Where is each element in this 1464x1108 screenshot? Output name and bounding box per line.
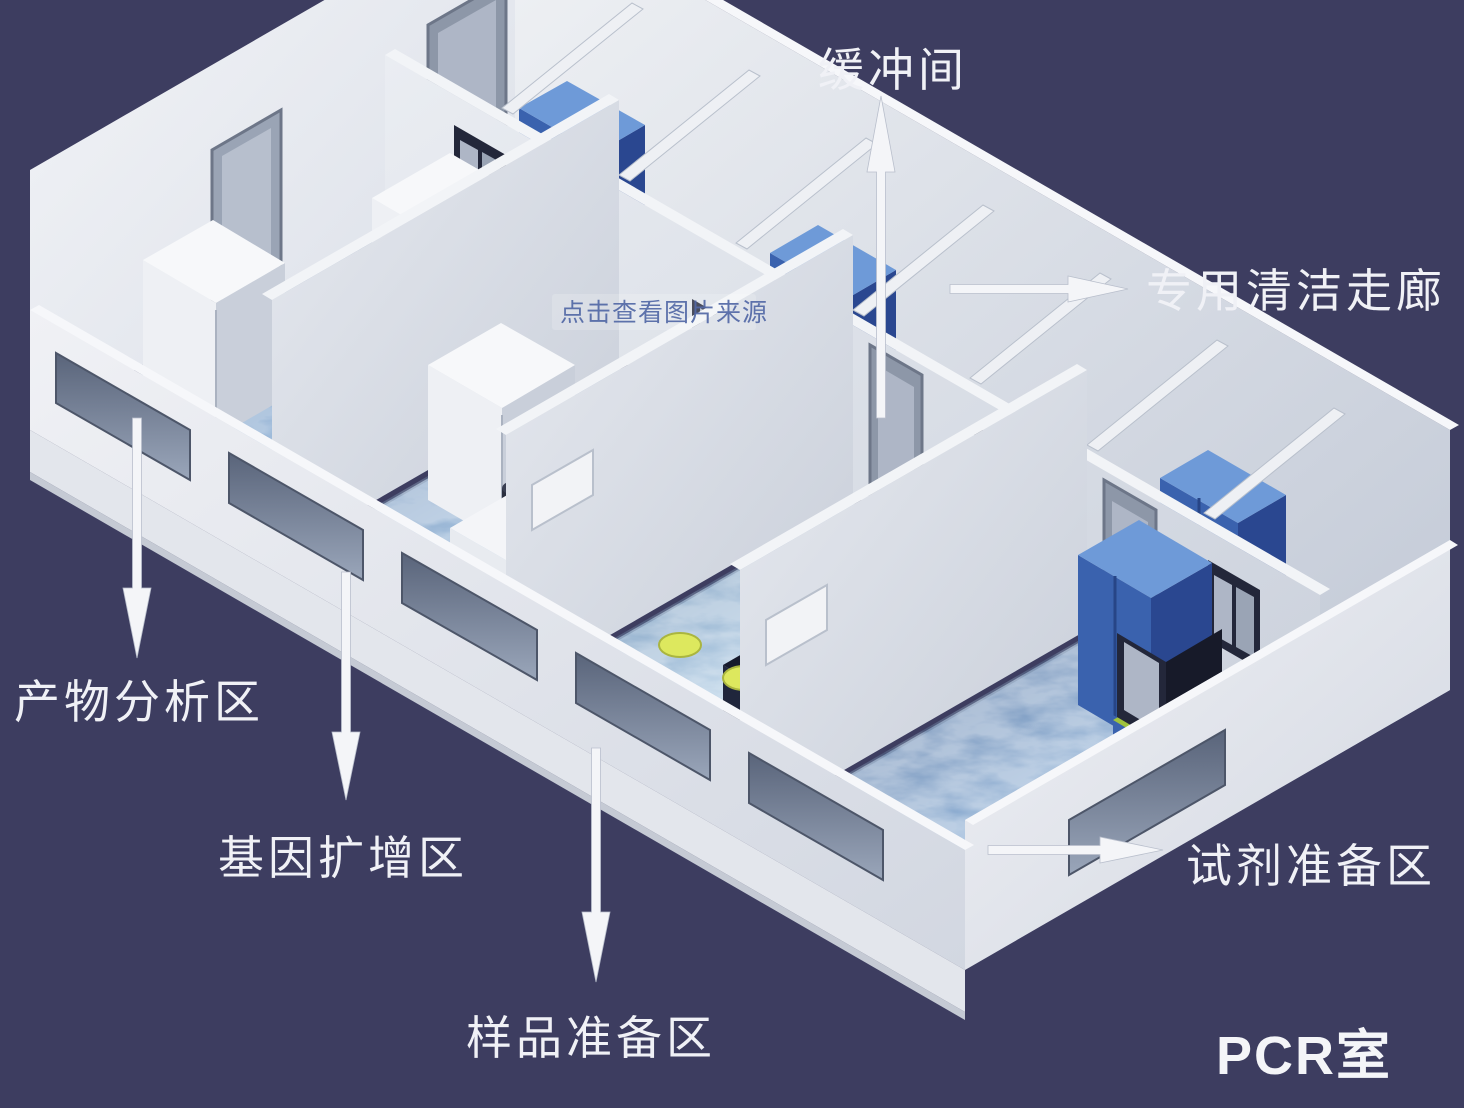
product-analysis-label: 产物分析区 — [14, 677, 264, 728]
buffer-room-label: 缓冲间 — [818, 45, 968, 96]
stool — [659, 633, 701, 657]
gene-amplification-label: 基因扩增区 — [218, 833, 468, 884]
pcr-room-title: PCR室 — [1216, 1026, 1392, 1086]
watermark-text[interactable]: 点击查看图片来源 — [560, 299, 768, 327]
sample-preparation-label: 样品准备区 — [466, 1013, 716, 1064]
pcr-lab-isometric-diagram: 缓冲间 专用清洁走廊 产物分析区 基因扩增区 样品准备区 试剂准备区 PCR室 … — [0, 0, 1464, 1108]
reagent-preparation-label: 试剂准备区 — [1186, 841, 1436, 892]
clean-corridor-label: 专用清洁走廊 — [1146, 266, 1446, 317]
watermark[interactable]: 点击查看图片来源 — [552, 294, 768, 330]
